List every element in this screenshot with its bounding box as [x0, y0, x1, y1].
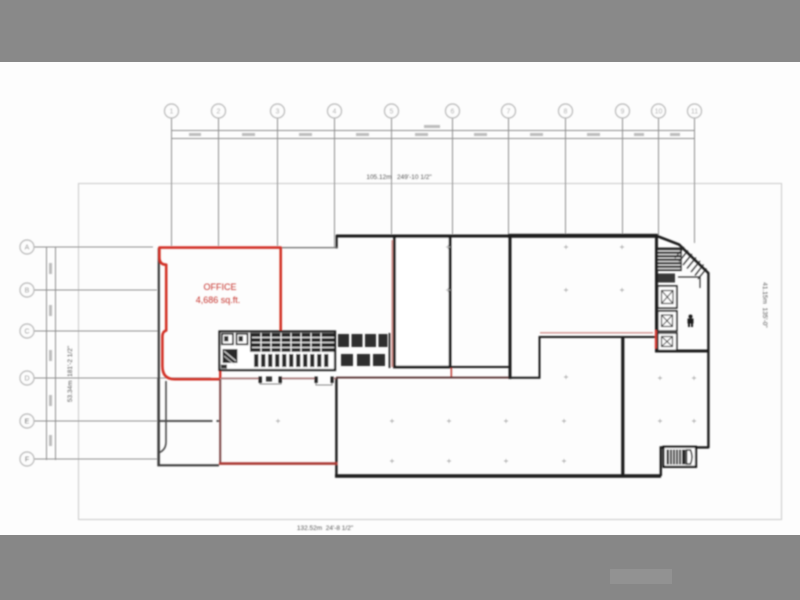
svg-text:1: 1 [170, 109, 174, 116]
svg-text:8: 8 [564, 109, 568, 116]
svg-text:F: F [25, 457, 29, 464]
svg-text:41.15m 135'-0": 41.15m 135'-0" [761, 282, 768, 328]
svg-text:2: 2 [217, 109, 221, 116]
svg-text:9: 9 [621, 109, 625, 116]
svg-text:A: A [25, 245, 30, 252]
svg-text:7: 7 [507, 109, 511, 116]
svg-text:C: C [24, 329, 29, 336]
svg-text:E: E [25, 419, 30, 426]
svg-text:5: 5 [390, 109, 394, 116]
svg-text:6: 6 [451, 109, 455, 116]
svg-text:132.52m 24'-8 1/2": 132.52m 24'-8 1/2" [297, 525, 354, 532]
svg-text:D: D [24, 376, 29, 383]
svg-text:OFFICE: OFFICE [204, 282, 237, 292]
svg-text:4: 4 [333, 109, 337, 116]
svg-text:10: 10 [655, 109, 663, 116]
svg-text:53.34m 181'-2 1/2": 53.34m 181'-2 1/2" [67, 345, 74, 402]
svg-text:105.12m 249'-10 1/2": 105.12m 249'-10 1/2" [366, 174, 432, 181]
svg-text:4,686 sq.ft.: 4,686 sq.ft. [196, 295, 241, 305]
svg-text:B: B [25, 288, 30, 295]
svg-text:3: 3 [276, 109, 280, 116]
svg-text:11: 11 [691, 109, 698, 116]
